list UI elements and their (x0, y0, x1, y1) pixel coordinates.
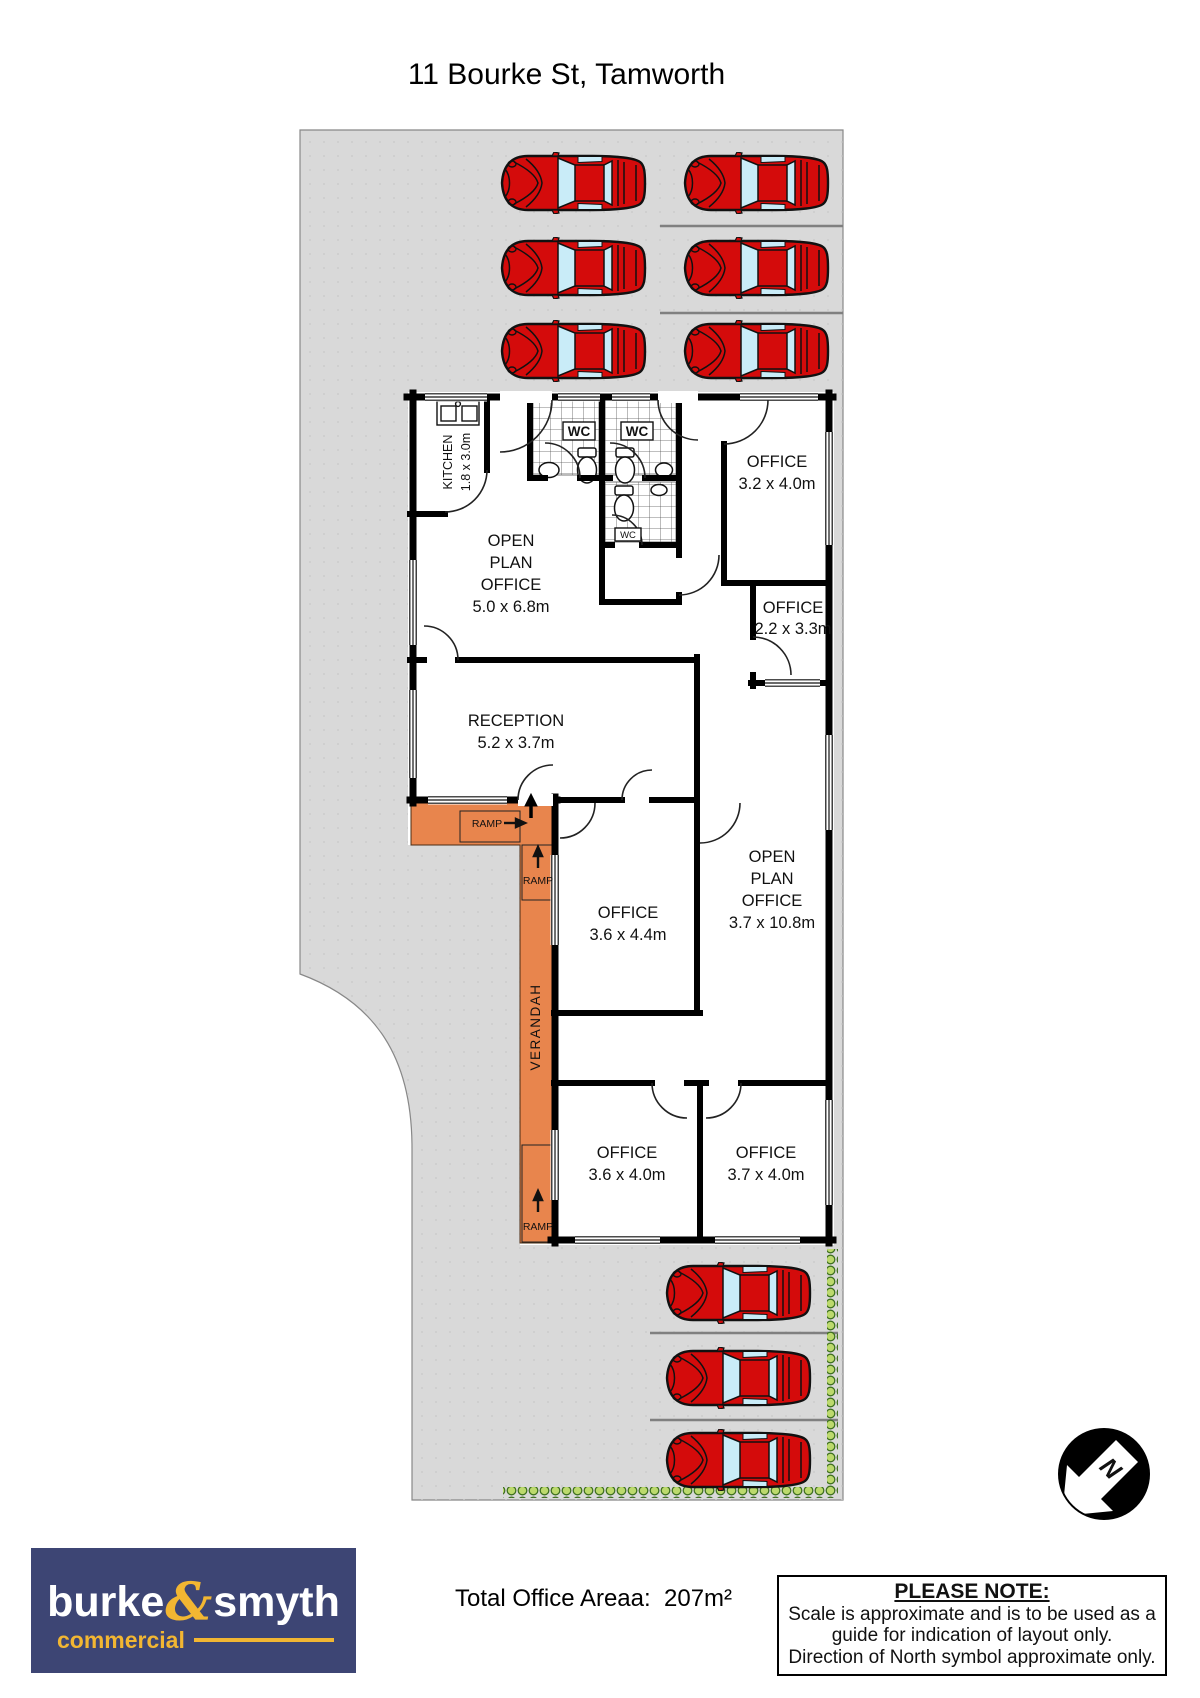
label-office-rear-right-name: OFFICE (736, 1144, 797, 1162)
label-office-middle-name: OFFICE (598, 904, 659, 922)
logo-rule (194, 1638, 334, 1642)
kitchen-sink (437, 401, 479, 425)
label-office-top-right-dims: 3.2 x 4.0m (738, 475, 815, 493)
label-open-plan-rear-2: PLAN (750, 870, 793, 888)
label-open-plan-front-2: PLAN (489, 554, 532, 572)
label-wc2: WC (626, 424, 649, 439)
label-office-side-dims: 2.2 x 3.3m (754, 620, 831, 638)
label-ramp-2: RAMP (523, 875, 553, 887)
label-reception-dims: 5.2 x 3.7m (477, 734, 554, 752)
parked-car (685, 320, 828, 382)
label-reception-name: RECEPTION (468, 712, 564, 730)
logo-burke-smyth: burke&smyth commercial (31, 1548, 356, 1673)
label-ramp-3: RAMP (523, 1221, 553, 1233)
label-office-top-right-name: OFFICE (747, 453, 808, 471)
label-wc1: WC (568, 424, 591, 439)
north-arrow-icon: N (1058, 1428, 1150, 1520)
logo-wordmark: burke&smyth (31, 1568, 356, 1629)
parked-car (685, 237, 828, 299)
label-open-plan-rear-dims: 3.7 x 10.8m (729, 914, 815, 932)
note-title: PLEASE NOTE: (779, 1581, 1165, 1603)
logo-tagline: commercial (57, 1627, 334, 1654)
total-office-area: Total Office Areaa: 207m² (455, 1585, 732, 1613)
parked-car (667, 1347, 810, 1409)
parked-car (502, 152, 645, 214)
label-open-plan-front-dims: 5.0 x 6.8m (472, 598, 549, 616)
label-office-rear-left-dims: 3.6 x 4.0m (588, 1166, 665, 1184)
logo-ampersand: & (165, 1572, 212, 1633)
label-wc3: WC (620, 530, 636, 541)
label-office-rear-left-name: OFFICE (597, 1144, 658, 1162)
label-open-plan-rear-1: OPEN (749, 848, 796, 866)
note-line-2: guide for indication of layout only. (779, 1625, 1165, 1647)
logo-word2: smyth (213, 1578, 340, 1626)
please-note-box: PLEASE NOTE: Scale is approximate and is… (777, 1575, 1167, 1676)
logo-tagline-text: commercial (57, 1627, 185, 1653)
label-office-middle-dims: 3.6 x 4.4m (589, 926, 666, 944)
parked-car (685, 152, 828, 214)
parked-car (667, 1429, 810, 1491)
floor-plan-svg: KITCHEN 1.8 x 3.0m WC WC WC OFFICE 3.2 x… (0, 0, 1200, 1698)
note-line-1: Scale is approximate and is to be used a… (779, 1604, 1165, 1626)
label-open-plan-rear-3: OFFICE (742, 892, 803, 910)
note-line-3: Direction of North symbol approximate on… (779, 1647, 1165, 1669)
logo-word1: burke (47, 1578, 164, 1626)
hedge-bottom (503, 1487, 838, 1498)
label-kitchen-dims: 1.8 x 3.0m (459, 433, 473, 491)
hedge-right (827, 1249, 838, 1491)
parked-car (667, 1262, 810, 1324)
label-kitchen-name: KITCHEN (441, 435, 455, 490)
parked-car (502, 320, 645, 382)
label-office-side-name: OFFICE (763, 599, 824, 617)
label-open-plan-front-3: OFFICE (481, 576, 542, 594)
label-open-plan-front-1: OPEN (488, 532, 535, 550)
label-ramp-1: RAMP (472, 818, 502, 830)
label-verandah: VERANDAH (528, 983, 543, 1070)
parked-car (502, 237, 645, 299)
label-office-rear-right-dims: 3.7 x 4.0m (727, 1166, 804, 1184)
